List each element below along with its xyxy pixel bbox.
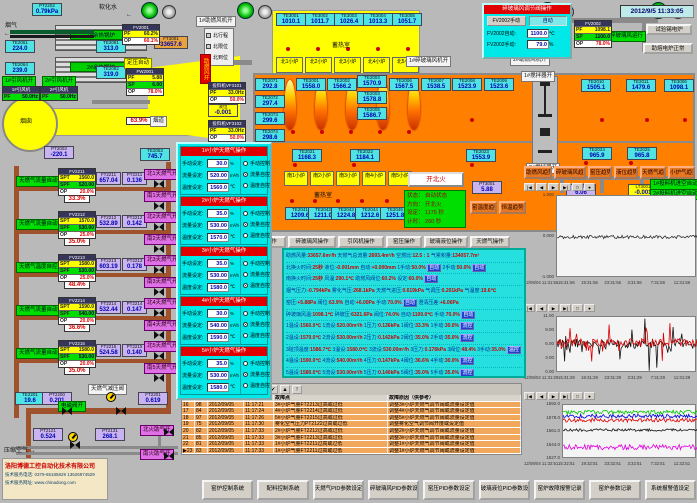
alarm-cell: 21 <box>182 435 195 441</box>
valve-icon[interactable] <box>154 352 164 360</box>
controller-row: SPT1590.0 <box>59 303 95 310</box>
radio-dot <box>243 372 248 377</box>
mode-radio-流量自控-1[interactable]: 流量自控 <box>241 169 270 180</box>
mode-radio-手动控制-3[interactable]: 手动控制 <box>241 258 270 269</box>
tag-液位: 液位-0.001 <box>208 104 238 117</box>
tag-value: 1098.1 <box>665 85 693 91</box>
trend-button-4[interactable]: 液位趋势 <box>614 166 638 179</box>
op-button-4[interactable]: 窑压操作 <box>386 236 422 248</box>
controller-row: PF5.88 <box>127 74 163 81</box>
temp-setpoint-input-2[interactable]: 1570.0 <box>207 233 229 242</box>
field-label: 流量设定: <box>182 272 207 279</box>
tag-value: 1538.5 <box>422 84 450 90</box>
trend-button-3[interactable]: 窑压趋势 <box>588 166 612 179</box>
chart-toolbar-button[interactable]: ▶| <box>560 304 571 312</box>
field-label: 温度设定: <box>182 284 207 291</box>
gas-panel-title: 2#小炉天燃气操作 <box>181 197 267 206</box>
alarm-cell: 调整2#小炉天燃气调节阀或流量设定值 <box>388 428 521 434</box>
gas-panel-body: 手动设定:35.0%流量设定:530.00m³/h温度设定:1580.0℃手动控… <box>181 356 267 394</box>
fv2002-manual-button[interactable]: FV2002手动 <box>487 16 526 26</box>
tag-TE3005: TE30051051.7 <box>392 13 422 26</box>
controller-row: SPT1580.0 <box>59 260 95 267</box>
controller-FV2001: FV2001PF60.2%OP60.1% <box>122 24 160 45</box>
controller-FV2214: FV2214SPT1590.0SPF540.00OP20.0% <box>58 297 96 325</box>
series-红 <box>563 418 697 422</box>
gas-panel-5: 5#小炉天燃气操作手动设定:35.0%流量设定:530.00m³/h温度设定:1… <box>180 346 268 395</box>
alarm-cell: 2012/09/05 <box>208 421 244 427</box>
status-line: 方向： 开北火 <box>407 201 463 210</box>
flow-setpoint-input-2[interactable]: 530.00 <box>207 221 229 230</box>
gas-panel-fields: 手动设定:35.0%流量设定:530.00m³/h温度设定:1580.0℃ <box>181 356 240 394</box>
trend-chart-3: |◀◀▶▶|□●1592.01578.01561.01544.01527.012… <box>524 392 697 401</box>
tag-TE2004: TE20041570.9 <box>357 75 387 88</box>
nav-button-1[interactable]: 窑炉控制系统 <box>202 480 253 500</box>
controller-row: PF50.0Hz <box>41 93 77 100</box>
flow-meter-icon <box>68 432 78 442</box>
nav-button-4[interactable]: 碎玻璃风PID参数设定 <box>368 480 419 500</box>
chart-toolbar-button[interactable]: |◀ <box>524 183 535 191</box>
field-unit: ℃ <box>229 284 239 290</box>
field-label: 手动设定: <box>182 210 207 217</box>
controller-row: SPT1560.0 <box>59 174 95 181</box>
chart-toolbar: |◀◀▶▶|□● <box>524 392 697 401</box>
chart-toolbar-button[interactable]: ● <box>584 392 595 400</box>
measure-dot <box>360 199 364 203</box>
tag-value: 1505.1 <box>582 85 610 91</box>
mode-radio-手动控制-2[interactable]: 手动控制 <box>241 208 270 219</box>
alarm-cell: 20 <box>182 428 195 434</box>
mode-radio-手动控制-4[interactable]: 手动控制 <box>241 308 270 319</box>
field-unit: m³/h <box>229 273 239 278</box>
nav-button-5[interactable]: 窑压PID参数设定 <box>423 480 474 500</box>
valve-icon[interactable] <box>154 245 164 253</box>
mode-radio-温度自控-4[interactable]: 温度自控 <box>241 330 270 341</box>
radio-dot <box>243 383 248 388</box>
checklist-item: 北行程 <box>206 30 232 41</box>
field-unit: % <box>229 211 239 216</box>
field-row: 温度设定:1580.0℃ <box>182 381 239 393</box>
trend-button-2[interactable]: 碎玻璃风趋势 <box>554 166 586 179</box>
mode-radio-温度自控-2[interactable]: 温度自控 <box>241 230 270 241</box>
controller-row: OP20.0% <box>59 317 95 324</box>
y-tick-label: 1561.0 <box>532 428 560 433</box>
manual-setpoint-input-3[interactable]: 35.0 <box>207 259 229 268</box>
valve-icon[interactable] <box>154 202 164 210</box>
label-: ← <box>124 11 134 20</box>
chart-plot-area <box>556 316 696 372</box>
mode-radio-手动控制-1[interactable]: 手动控制 <box>241 158 270 169</box>
series-窑压 kPa <box>557 235 697 238</box>
controller-FV2212: FV2212SPT1570.0SPF530.00OP25.0% <box>58 211 96 239</box>
chart-toolbar-button[interactable]: ● <box>584 183 595 191</box>
controller-row: SPF520.00 <box>59 181 95 188</box>
auto-setpoint-input[interactable]: 1100.0 <box>527 29 549 38</box>
mode-radio-流量自控-5[interactable]: 流量自控 <box>241 369 270 380</box>
manual-setpoint-input-2[interactable]: 35.0 <box>207 209 229 218</box>
valve-icon[interactable] <box>154 309 164 317</box>
label-碎玻璃风运行: 碎玻璃风运行 <box>607 31 646 42</box>
alarm-cell: 2012/09/05 <box>208 441 244 447</box>
tag-value: 1523.9 <box>453 84 481 90</box>
valve-position-value: 35.0% <box>64 238 90 246</box>
alarm-row[interactable]: 18972012/09/0511:17:265#小炉气量FT2215过高或过低调… <box>182 415 521 422</box>
controller-row: OP20.0% <box>59 188 95 195</box>
gas-panel-body: 手动设定:30.0%流量设定:540.00m³/h温度设定:1590.0℃手动控… <box>181 306 267 344</box>
y-tick-label: 3.00 <box>526 355 554 360</box>
alarm-cell: 11:17:33 <box>244 448 274 454</box>
y-tick-label: 1527.0 <box>532 455 560 460</box>
nav-button-8[interactable]: 窑炉参数记录 <box>589 480 640 500</box>
chart-toolbar-button[interactable]: ◀ <box>536 183 547 191</box>
valve-icon[interactable] <box>154 266 164 274</box>
gas-panel-body: 手动设定:35.0%流量设定:530.00m³/h温度设定:1570.0℃手动控… <box>181 206 267 244</box>
gas-panel-title: 5#小炉天燃气操作 <box>181 347 267 356</box>
chart-toolbar-button[interactable]: ◀ <box>536 392 547 400</box>
info-line: 4温设:1590.0℃ 4流设:540.00m³/h 4压力:0.147kPa … <box>286 356 522 368</box>
gas-panel-title: 3#小炉天燃气操作 <box>181 247 267 256</box>
radio-dot <box>243 233 248 238</box>
temp-setpoint-input-3[interactable]: 1580.0 <box>207 283 229 292</box>
north-port-4: 北4小炉 <box>363 57 390 73</box>
field-label: 流量设定: <box>182 372 207 379</box>
label-1碎玻璃风机开: 1#碎玻璃风机开 <box>406 56 451 67</box>
mode-radio-温度自控-3[interactable]: 温度自控 <box>241 280 270 291</box>
trend-button-1[interactable]: 助燃风趋势 <box>524 166 552 179</box>
chart-toolbar-button[interactable]: ▶ <box>548 183 559 191</box>
status-line: 状态： 自动状态 <box>407 192 463 201</box>
fan-motor-icon <box>162 5 176 19</box>
label-压缩空气: 压缩空气 → <box>2 447 38 456</box>
alarm-cell: 11:17:33 <box>244 441 274 447</box>
fv2002-auto-button[interactable]: 自动 <box>529 16 568 26</box>
chart-toolbar-button[interactable]: ▶| <box>560 392 571 400</box>
alarm-cell: 3#小炉气量FT2213过高或过低 <box>274 402 388 408</box>
tag-TE2008: TE20081523.9 <box>452 78 482 91</box>
field-row: 流量设定:520.00m³/h <box>182 169 239 181</box>
port-label: 北1小炉 <box>277 58 302 65</box>
manual-setpoint-input-4[interactable]: 30.0 <box>207 309 229 318</box>
gas-panel-fields: 手动设定:35.0%流量设定:530.00m³/h温度设定:1570.0℃ <box>181 206 240 244</box>
north-port-1: 北1小炉 <box>276 57 303 73</box>
controller-FV2213: FV2213SPT1580.0SPF530.00OP25.0% <box>58 254 96 282</box>
tag-TE3004: TE30041013.3 <box>363 13 393 26</box>
north-port-2: 北2小炉 <box>305 57 332 73</box>
nav-button-9[interactable]: 系统报警值设定 <box>645 480 696 500</box>
controller-FV2211: FV2211SPT1560.0SPF520.00OP20.0% <box>58 168 96 196</box>
tag-TE2022: TE20221184.1 <box>350 149 380 162</box>
field-unit: ℃ <box>229 234 239 240</box>
tag-value: 965.9 <box>583 153 611 159</box>
port-label: 南3小炉 <box>337 172 359 179</box>
field-label: 手动设定: <box>182 260 207 267</box>
valve-icon[interactable] <box>154 331 164 339</box>
alarm-row[interactable]: 16982012/09/0511:17:213#小炉气量FT2213过高或过低调… <box>182 402 521 409</box>
tag-value: 268.1 <box>96 434 124 440</box>
tag-value: 313.0 <box>97 46 125 52</box>
controller-FW2001: FW2001PF5.88SP6.00OP78.0% <box>126 68 164 96</box>
nav-button-7[interactable]: 窑炉故障报警记录 <box>534 480 585 500</box>
radio-dot <box>243 161 248 166</box>
radio-dot <box>243 183 248 188</box>
gas-panel-radios: 手动控制流量自控温度自控 <box>240 306 270 344</box>
manual-setpoint-label: FV2002手动: <box>487 41 527 48</box>
tag-TE2009: TE20091523.6 <box>484 78 514 91</box>
tag-TE2201: TE220119.6 <box>15 392 45 405</box>
temp-setpoint-input-1[interactable]: 1560.0 <box>207 183 229 192</box>
tag-TE2071: TE2071292.8 <box>255 78 285 91</box>
controller-row: OP50.0% <box>209 134 245 141</box>
flow-setpoint-input-1[interactable]: 520.00 <box>207 171 229 180</box>
top-button-1[interactable]: 试验锡电炉 <box>646 24 692 35</box>
chart-toolbar-button[interactable]: ▶| <box>560 183 571 191</box>
tag-value: 745.7 <box>141 154 169 160</box>
chart-toolbar-button[interactable]: □ <box>572 304 583 312</box>
series-黑 <box>563 429 697 432</box>
trend-button-top-2[interactable]: 恒温趋势 <box>499 201 526 214</box>
tag-TE2061: TE2061224.0 <box>5 40 35 53</box>
port-label: 北4小炉 <box>364 58 389 65</box>
manual-setpoint-input-5[interactable]: 35.0 <box>207 359 229 368</box>
label-1搅拌器开: 1#搅拌器开 <box>521 71 555 82</box>
measure-dot <box>290 199 294 203</box>
mode-radio-手动控制-5[interactable]: 手动控制 <box>241 358 270 369</box>
tag-PT2003: PT2003-220.1 <box>44 146 74 159</box>
y-tick-label: 1544.0 <box>532 442 560 447</box>
trend-button-top-1[interactable]: 窑温度趋势 <box>470 201 497 214</box>
tag-value: 1026.4 <box>335 19 363 25</box>
tag-value: 239.0 <box>6 68 34 74</box>
manual-setpoint-input-1[interactable]: 30.0 <box>207 159 229 168</box>
tag-value: 292.8 <box>256 84 284 90</box>
measure-dot <box>291 130 295 134</box>
stirrer-blade <box>538 150 552 153</box>
tag-value: 1566.2 <box>328 84 356 90</box>
alarm-cell: 3#小炉气量FT2213过高或过低 <box>274 435 388 441</box>
y-tick-label: 1578.0 <box>532 415 560 420</box>
alarm-row[interactable]: ▶23832012/09/0511:17:331#小炉气量FT2211过高或过低… <box>182 448 521 455</box>
controller-row: PF50.0Hz <box>3 93 39 100</box>
radio-dot <box>243 322 248 327</box>
alarm-cell: 2012/09/05 <box>208 402 244 408</box>
x-tick-row: 12/09/04 11:31:2915:31:2919:31:2923:31:2… <box>524 375 697 380</box>
mode-radio-温度自控-1[interactable]: 温度自控 <box>241 180 270 191</box>
chart-toolbar-button[interactable]: ◀ <box>536 304 547 312</box>
tag-value: -0.001 <box>209 110 237 116</box>
y-tick-label: -1.000 <box>526 274 554 279</box>
stirrer-motor-icon <box>540 128 550 136</box>
alarm-header-cell: 故障原因（供参考） <box>388 395 521 401</box>
alarm-header-cell: 故障点 <box>274 395 388 401</box>
measure-dot <box>316 47 320 51</box>
op-button-5[interactable]: 玻璃液位操作 <box>424 236 468 248</box>
trend-button-6[interactable]: 小炉气趋势 <box>668 166 695 179</box>
field-unit: % <box>229 311 239 316</box>
chart-toolbar-button[interactable]: |◀ <box>524 392 535 400</box>
valve-position-value: 36.6% <box>64 324 90 332</box>
fire-north-button[interactable]: 开北火 <box>408 172 464 187</box>
tag-value: 1479.6 <box>627 85 655 91</box>
measure-dot <box>378 130 382 134</box>
tag-TE3001: TE30011010.1 <box>276 13 306 26</box>
nav-button-3[interactable]: 天燃气PID参数设定 <box>313 480 364 500</box>
tag-value: 19.6 <box>16 398 44 404</box>
valve-icon[interactable] <box>62 407 72 415</box>
measure-dot <box>320 130 324 134</box>
tag-value: 1523.6 <box>485 84 513 90</box>
chart-toolbar-button[interactable]: ▶ <box>548 392 559 400</box>
measure-dot <box>293 163 297 167</box>
measure-dot <box>349 130 353 134</box>
field-row: 手动设定:30.0% <box>182 157 239 169</box>
fan-impeller-icon <box>141 2 158 19</box>
series-绿 <box>563 410 697 414</box>
alarm-cell: 16 <box>182 402 195 408</box>
tag-TE2005: TE20051586.7 <box>357 107 387 120</box>
pipe <box>10 30 94 34</box>
alarm-row[interactable]: 21852012/09/0511:17:333#小炉气量FT2213过高或过低调… <box>182 435 521 442</box>
tag-TE2006: TE20061567.5 <box>389 78 419 91</box>
tag-value: 1567.5 <box>390 84 418 90</box>
flow-setpoint-input-4[interactable]: 540.00 <box>207 321 229 330</box>
controller-row: OP25.0% <box>59 274 95 281</box>
gas-panel-3: 3#小炉天燃气操作手动设定:35.0%流量设定:530.00m³/h温度设定:1… <box>180 246 268 295</box>
flow-setpoint-input-3[interactable]: 530.00 <box>207 271 229 280</box>
controller-row: SPF540.00 <box>59 310 95 317</box>
toolbar-icon[interactable]: ! <box>292 385 302 394</box>
label-烟道: 烟道 <box>150 116 167 127</box>
field-row: 流量设定:530.00m³/h <box>182 269 239 281</box>
company-name: 洛阳博德工控自动化技术有限公司 <box>5 461 105 470</box>
gas-panel-radios: 手动控制流量自控温度自控 <box>240 256 270 294</box>
manual-setpoint-input[interactable]: 79.0 <box>527 40 549 49</box>
field-row: 流量设定:530.00m³/h <box>182 369 239 381</box>
measure-dot <box>470 163 474 167</box>
mode-radio-流量自控-2[interactable]: 流量自控 <box>241 219 270 230</box>
alarm-cell: 98 <box>195 402 208 408</box>
valve-icon[interactable] <box>154 180 164 188</box>
valve-icon[interactable] <box>154 288 164 296</box>
tag-TE2002: TE20021566.2 <box>327 78 357 91</box>
top-button-2[interactable]: 助熔电炉正常 <box>643 43 693 54</box>
chart-toolbar-button[interactable]: □ <box>572 392 583 400</box>
nav-button-6[interactable]: 玻璃液位PID参数设定 <box>479 480 530 500</box>
tag-value: 319.0 <box>97 72 125 78</box>
alarm-cell: 11:17:33 <box>244 435 274 441</box>
tag-value: 1570.9 <box>358 81 386 87</box>
alarm-cell: 2012/09/05 <box>208 408 244 414</box>
temp-setpoint-input-4[interactable]: 1590.0 <box>207 333 229 342</box>
tag-FT2213: FT2213603.19 <box>96 258 121 271</box>
toolbar-icon[interactable]: ▲ <box>280 385 290 394</box>
checklist-item: 北限位 <box>206 41 232 52</box>
op-button-3[interactable]: 引风机操作 <box>338 236 384 248</box>
field-row: 流量设定:530.00m³/h <box>182 219 239 231</box>
stirrer-blade <box>538 114 552 117</box>
gas-operation-popup: 1#小炉天燃气操作手动设定:30.0%流量设定:520.00m³/h温度设定:1… <box>176 142 272 400</box>
field-unit: ℃ <box>229 184 239 190</box>
tag-TE3003: TE30031026.4 <box>334 13 364 26</box>
y-tick-label: 1592.0 <box>532 401 560 406</box>
controller-title: 投料机VF3102 <box>209 121 245 127</box>
auto-mode-label-1: 天燃气流量自动 <box>16 176 61 187</box>
tag-value: 965.8 <box>628 153 656 159</box>
alarm-row[interactable]: 17842012/09/0511:17:244#小炉气量FT2214过高或过低调… <box>182 408 521 415</box>
chart-toolbar-button[interactable]: ▶ <box>548 304 559 312</box>
trend-button-5[interactable]: 天燃气趋势 <box>640 166 666 179</box>
radio-dot <box>243 261 248 266</box>
temp-setpoint-input-5[interactable]: 1580.0 <box>207 383 229 392</box>
fan-motor-icon <box>258 5 272 19</box>
measure-dot <box>376 47 380 51</box>
trend-chart-2: |◀◀▶▶|□●11.009.006.003.000.0012/09/04 11… <box>524 304 697 313</box>
mode-radio-温度自控-5[interactable]: 温度自控 <box>241 380 270 391</box>
alarm-row[interactable]: 19752012/09/0511:17:30雾化空气压力PT2122过高或过低调… <box>182 421 521 428</box>
field-row: 手动设定:35.0% <box>182 357 239 369</box>
y-tick-label: 1.000 <box>526 192 554 197</box>
scada-screen: 1#余热锅炉 2#余热锅炉 碎玻璃风调节阀操作 FV2002手动 自动 FV20… <box>0 0 697 503</box>
tag-value: 1578.8 <box>358 97 386 103</box>
valve-icon[interactable] <box>164 428 174 436</box>
label-: ← <box>2 30 12 39</box>
alarm-cell: 调整5#小炉天燃气调节阀或流量设定值 <box>388 415 521 421</box>
south-port-3: 南3小炉 <box>336 171 360 186</box>
label-定压自动: 定压自动 <box>124 58 152 69</box>
field-label: 流量设定: <box>182 222 207 229</box>
alarm-cell: 11:17:26 <box>244 415 274 421</box>
field-row: 手动设定:30.0% <box>182 307 239 319</box>
chart-date-label: 12/09/04 11:31:56 <box>524 280 558 285</box>
alarm-row[interactable]: 20822012/09/0511:17:332#小炉气量FT2212过高或过低调… <box>182 428 521 435</box>
info-line: 碎玻璃风温:1098.1℃ 碎玻压:6321.6Pa 阀位:74.0% 自动:1… <box>286 310 522 322</box>
tag-TE2011: TE20111479.6 <box>626 79 656 92</box>
mode-radio-流量自控-4[interactable]: 流量自控 <box>241 319 270 330</box>
series-蓝 <box>563 414 697 418</box>
flow-setpoint-input-5[interactable]: 530.00 <box>207 371 229 380</box>
chart-toolbar-button[interactable]: ● <box>584 304 595 312</box>
op-button-2[interactable]: 碎玻璃风操作 <box>288 236 336 248</box>
tag-TE2074: TE2074298.6 <box>255 129 285 142</box>
valve-icon[interactable] <box>164 452 174 460</box>
alarm-cell: 2012/09/05 <box>208 415 244 421</box>
info-line: 1温设:1560.0℃ 1流设:520.00m³/h 1压力:0.136kPa … <box>286 321 522 333</box>
tag-TE2010: TE20101505.1 <box>581 79 611 92</box>
alarm-row[interactable]: 22812012/09/0511:17:331#小炉气量FT2211过高或过低调… <box>182 441 521 448</box>
tag-value: -220.1 <box>45 152 73 158</box>
tag-TE2073: TE2073299.6 <box>255 112 285 125</box>
tag-TE2072: TE2072297.4 <box>255 95 285 108</box>
chart-plot-area <box>562 404 696 458</box>
controller-投料机VF3102: 投料机VF3102PF33.0HzOP50.0% <box>208 120 246 142</box>
nav-button-2[interactable]: 配料控制系统 <box>257 480 308 500</box>
trend-chart-1: |◀◀▶▶|□●1.0000.000-1.00012/09/04 11:31:5… <box>524 183 697 192</box>
field-unit: % <box>229 361 239 366</box>
field-unit: m³/h <box>229 173 239 178</box>
gas-panel-2: 2#小炉天燃气操作手动设定:35.0%流量设定:530.00m³/h温度设定:1… <box>180 196 268 245</box>
status-line: 计时： 260 秒 <box>407 218 463 227</box>
controller-row: OP78.0% <box>575 40 611 47</box>
op-button-6[interactable]: 天燃气操作 <box>470 236 510 248</box>
field-unit: ℃ <box>229 384 239 390</box>
valve-icon[interactable] <box>116 407 126 415</box>
mode-radio-流量自控-3[interactable]: 流量自控 <box>241 269 270 280</box>
chart-toolbar-button[interactable]: □ <box>572 183 583 191</box>
valve-icon[interactable] <box>70 441 80 449</box>
y-tick-label: 0.000 <box>526 233 554 238</box>
field-unit: m³/h <box>229 323 239 328</box>
auto-unit: ℃ <box>549 31 555 37</box>
valve-icon[interactable] <box>154 223 164 231</box>
valve-icon[interactable] <box>154 374 164 382</box>
